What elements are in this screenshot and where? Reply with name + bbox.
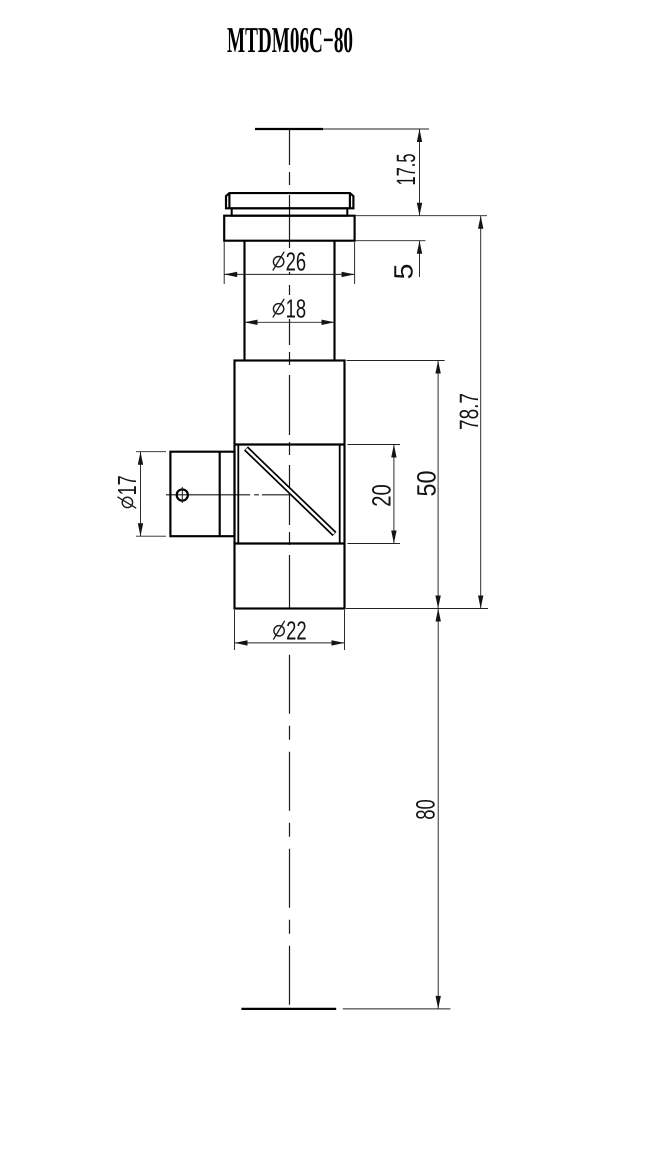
svg-text:17.5: 17.5	[391, 154, 421, 186]
svg-text:26: 26	[286, 246, 307, 276]
svg-text:17: 17	[112, 475, 142, 495]
svg-text:22: 22	[286, 615, 307, 645]
svg-text:80: 80	[411, 799, 441, 820]
svg-text:18: 18	[286, 293, 307, 323]
svg-text:50: 50	[412, 471, 442, 497]
svg-text:5: 5	[389, 264, 419, 280]
svg-text:20: 20	[367, 484, 397, 507]
svg-text:MTDM06C−80: MTDM06C−80	[227, 19, 353, 60]
svg-text:78.7: 78.7	[454, 393, 484, 430]
